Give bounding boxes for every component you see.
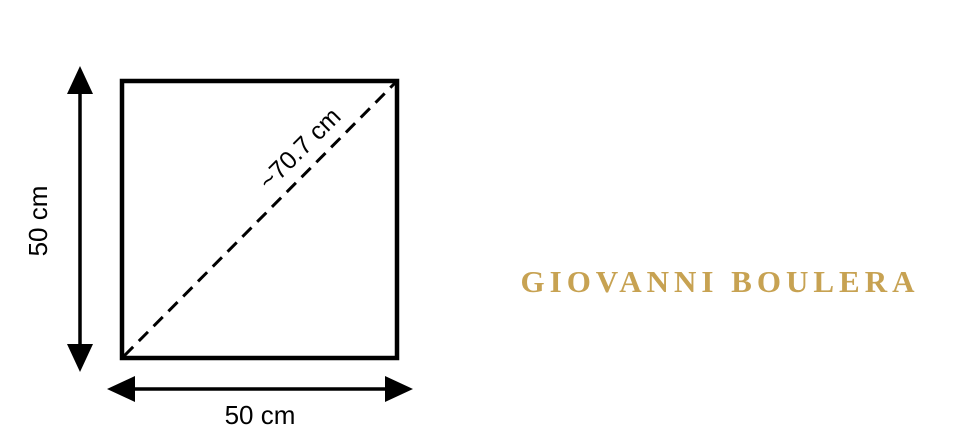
height-label: 50 cm — [23, 186, 53, 257]
arrowhead-down-icon — [67, 344, 93, 372]
diagonal-dashed-line — [124, 83, 395, 356]
brand-name: GIOVANNI BOULERA — [480, 262, 960, 302]
height-dimension-arrow — [67, 66, 93, 372]
diagonal-label: ~70.7 cm — [253, 102, 346, 195]
dimension-diagram: 50 cm 50 cm ~70.7 cm — [0, 0, 960, 440]
page-canvas: 50 cm 50 cm ~70.7 cm GIOVANNI BOULERA — [0, 0, 960, 440]
width-label: 50 cm — [225, 400, 296, 430]
arrowhead-right-icon — [385, 376, 413, 402]
arrowhead-left-icon — [107, 376, 135, 402]
arrowhead-up-icon — [67, 66, 93, 94]
width-dimension-arrow — [107, 376, 413, 402]
